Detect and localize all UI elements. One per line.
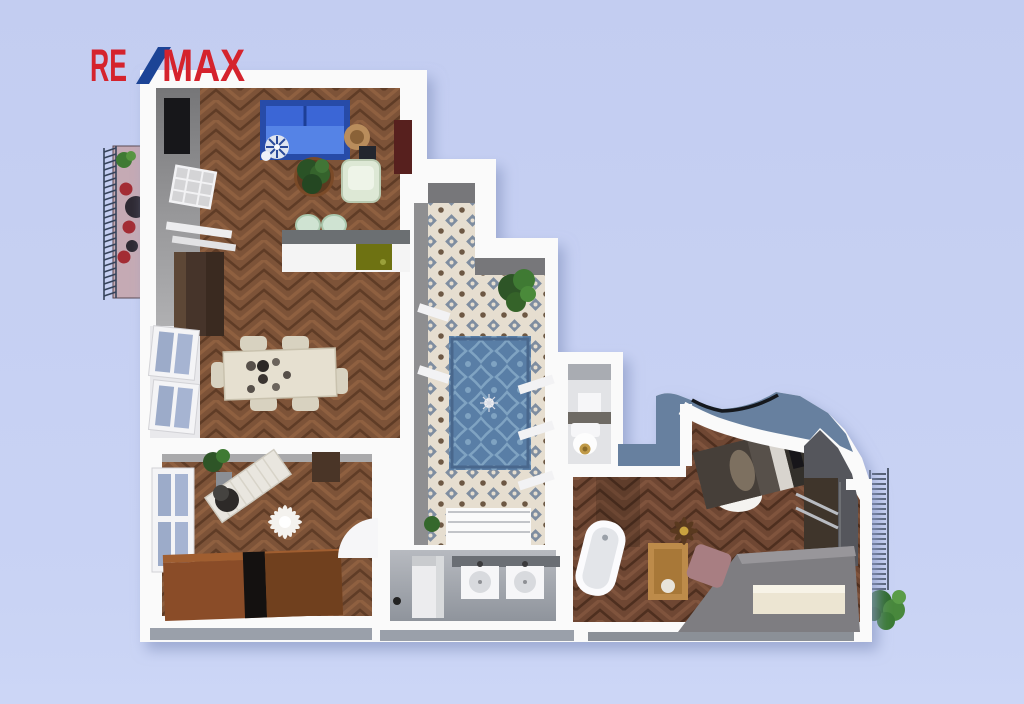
svg-text:MAX: MAX [162,40,245,91]
svg-text:RE: RE [90,40,127,91]
